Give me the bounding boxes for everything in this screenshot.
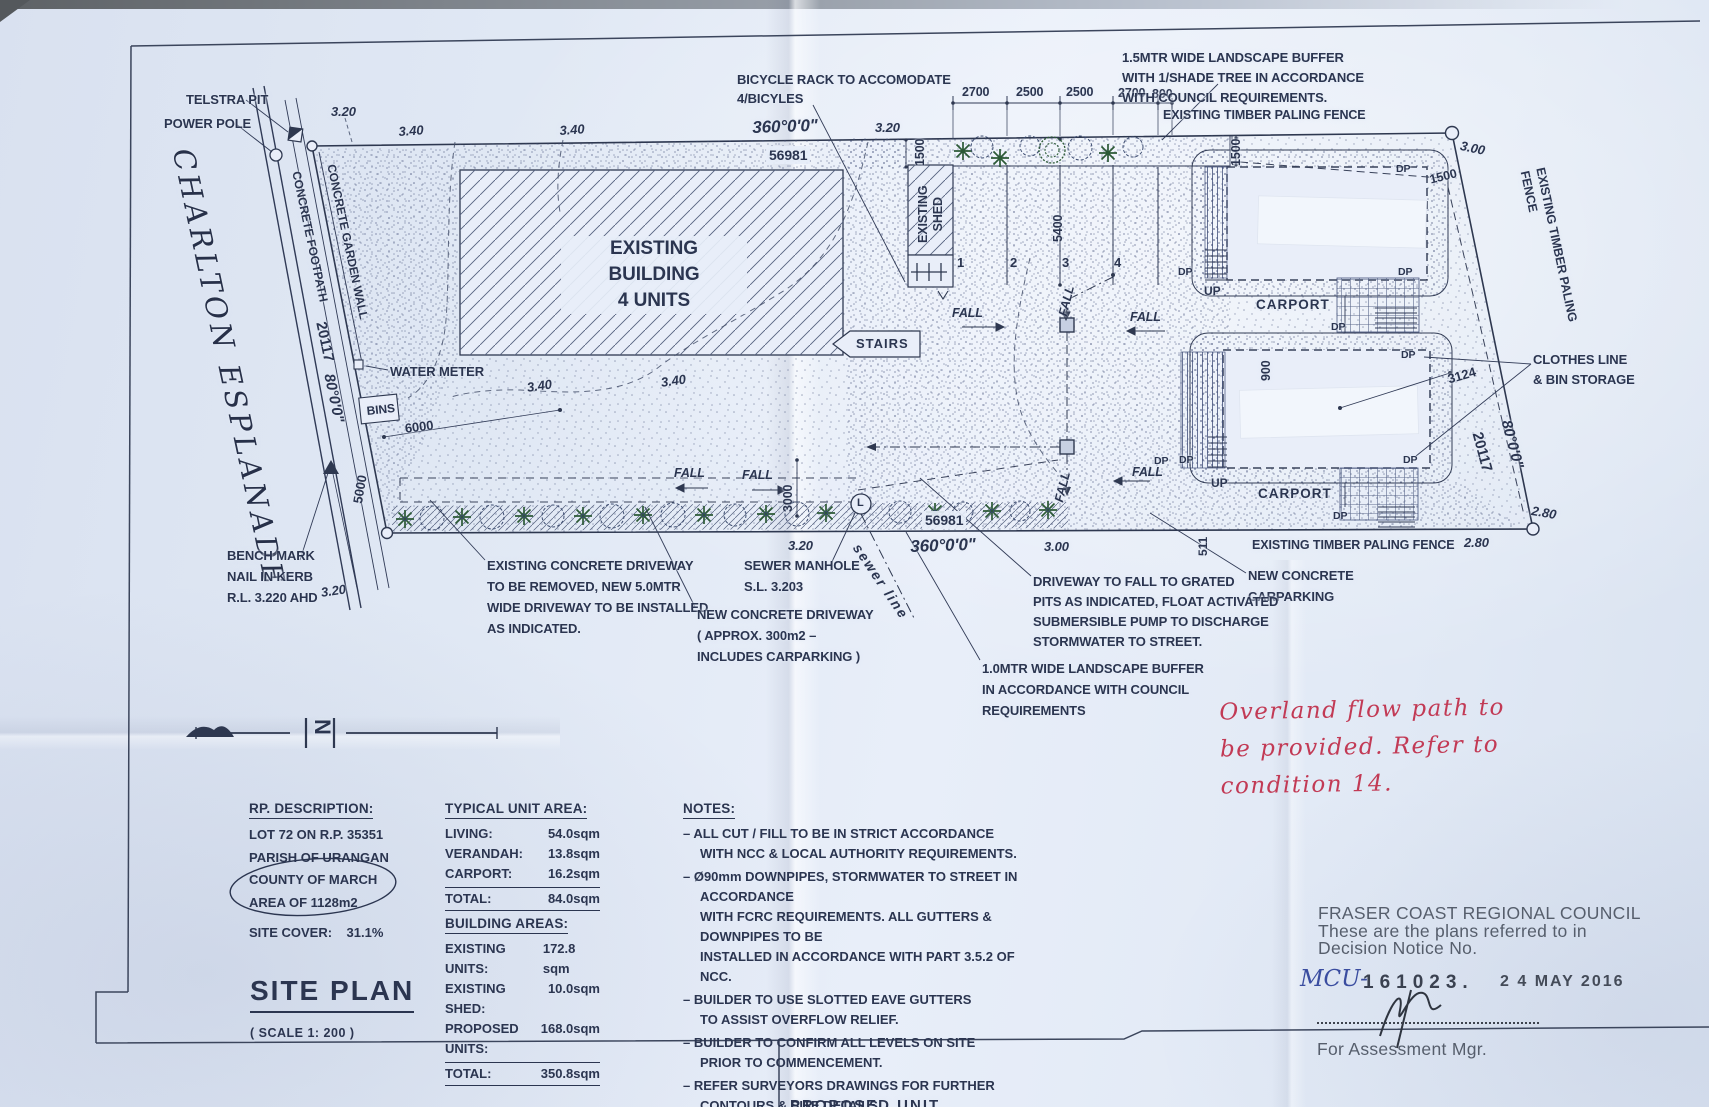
rp-heading: RP. DESCRIPTION:	[249, 801, 373, 819]
fall-label: FALL	[674, 465, 705, 481]
stairs-label: STAIRS	[856, 336, 909, 353]
siteplan-title-block: SITE PLAN ( SCALE 1: 200 )	[250, 975, 414, 1040]
north-letter: N	[307, 719, 336, 735]
notes-items: – ALL CUT / FILL TO BE IN STRICT ACCORDA…	[683, 824, 1028, 1107]
level-320: 3.20	[788, 538, 813, 555]
council-stamp-block: FRASER COAST REGIONAL COUNCIL These are …	[1318, 905, 1641, 958]
downpipe-label: DP	[1333, 510, 1347, 524]
table-row: EXISTING SHED:10.0sqm	[445, 979, 600, 1019]
row-value: 16.2sqm	[548, 864, 600, 884]
page-title: SITE PLAN	[250, 975, 414, 1013]
building-areas-rows: EXISTING UNITS:172.8 sqmEXISTING SHED:10…	[445, 939, 600, 1059]
unit-area-rows: LIVING:54.0sqmVERANDAH:13.8sqmCARPORT:16…	[445, 824, 600, 884]
carpark-bay-number: 1	[957, 255, 964, 272]
bins-label: BINS	[366, 401, 396, 419]
dim-1500: 1500	[912, 139, 928, 166]
rp-description-block: RP. DESCRIPTION: LOT 72 ON R.P. 35351 PA…	[249, 800, 389, 945]
dim-20117: 20117	[311, 320, 338, 364]
level-340: 3.40	[398, 122, 424, 141]
row-label: EXISTING SHED:	[445, 979, 548, 1019]
row-value: 13.8sqm	[548, 844, 600, 864]
building-areas-total: TOTAL: 350.8sqm	[445, 1062, 600, 1086]
fall-label: FALL	[742, 467, 773, 483]
dim-spacing: 2500	[1016, 84, 1043, 100]
row-value: 54.0sqm	[548, 824, 600, 844]
red-handwritten-note: Overland flow path to be provided. Refer…	[1219, 690, 1506, 806]
up-label: UP	[1204, 284, 1220, 300]
carpark-bay-number: 2	[1010, 255, 1017, 272]
note-item: – Ø90mm DOWNPIPES, STORMWATER TO STREET …	[683, 867, 1028, 987]
note-item: – ALL CUT / FILL TO BE IN STRICT ACCORDA…	[683, 824, 1028, 864]
date-stamp: 2 4 MAY 2016	[1500, 973, 1625, 991]
table-row: LIVING:54.0sqm	[445, 824, 600, 844]
unit-area-total: TOTAL: 84.0sqm	[445, 887, 600, 911]
fall-label: FALL	[1051, 470, 1074, 504]
fall-label: FALL	[1132, 464, 1163, 480]
fence-label-top: EXISTING TIMBER PALING FENCE	[1163, 107, 1366, 123]
note-landscape-buffer-1500: 1.5MTR WIDE LANDSCAPE BUFFER WITH 1/SHAD…	[1122, 48, 1364, 108]
bearing-east: 80°0'0"	[1496, 418, 1528, 471]
bearing-south: 360°0'0"	[910, 534, 976, 558]
downpipe-label: DP	[1398, 266, 1412, 280]
carport-label: CARPORT	[1258, 485, 1332, 503]
fence-label-right: EXISTING TIMBER PALING FENCE	[1516, 166, 1581, 330]
council-line3: Decision Notice No.	[1318, 940, 1641, 958]
red-note-line: condition 14.	[1220, 764, 1506, 806]
downpipe-label: DP	[1396, 163, 1410, 177]
table-row: CARPORT:16.2sqm	[445, 864, 600, 884]
rp-site-cover: SITE COVER: 31.1%	[249, 922, 389, 945]
fall-label: FALL	[952, 305, 983, 321]
carpark-bay-number: 4	[1114, 255, 1121, 272]
note-new-driveway: NEW CONCRETE DRIVEWAY ( APPROX. 300m2 – …	[697, 604, 874, 667]
level-280: 2.80	[1530, 503, 1557, 524]
telstra-pit-label: TELSTRA PIT	[186, 92, 268, 109]
row-value: 172.8 sqm	[543, 939, 600, 979]
signature-line	[1317, 1022, 1539, 1024]
rp-county: COUNTY OF MARCH	[249, 869, 389, 892]
power-pole-label: POWER POLE	[164, 116, 251, 133]
level-340: 3.40	[559, 121, 585, 140]
distance-south: 56981	[922, 511, 966, 529]
row-label: VERANDAH:	[445, 844, 523, 864]
table-row: EXISTING UNITS:172.8 sqm	[445, 939, 600, 979]
table-row: PROPOSED UNITS:168.0sqm	[445, 1019, 600, 1059]
up-label: UP	[1211, 476, 1227, 492]
benchmark-note: BENCH MARK NAIL IN KERB R.L. 3.220 AHD	[227, 545, 318, 608]
note-item: – REFER SURVEYORS DRAWINGS FOR FURTHER C…	[683, 1076, 1028, 1107]
decision-number-stamp: 161023.	[1363, 972, 1474, 994]
bearing-north: 360°0'0"	[752, 115, 818, 139]
dim-5000: 5000	[350, 474, 372, 505]
scanned-site-plan-page: TELSTRA PITPOWER POLECHARLTON ESPLANADE3…	[0, 0, 1709, 1107]
downpipe-label: DP	[1401, 349, 1415, 363]
row-value: 168.0sqm	[541, 1019, 600, 1059]
row-label: CARPORT:	[445, 864, 512, 884]
row-label: LIVING:	[445, 824, 493, 844]
note-driveway-fall: DRIVEWAY TO FALL TO GRATED PITS AS INDIC…	[1033, 572, 1278, 652]
notes-block: NOTES: – ALL CUT / FILL TO BE IN STRICT …	[683, 800, 1028, 1107]
dim-spacing: 2500	[1066, 84, 1093, 100]
row-label: EXISTING UNITS:	[445, 939, 543, 979]
fall-label: FALL	[1130, 309, 1161, 325]
note-sewer-manhole: SEWER MANHOLE S.L. 3.203	[744, 555, 860, 597]
downpipe-label: DP	[1331, 321, 1345, 335]
dim-3000: 3000	[780, 485, 796, 512]
rp-parish: PARISH OF URANGAN	[249, 847, 389, 870]
note-existing-driveway: EXISTING CONCRETE DRIVEWAY TO BE REMOVED…	[487, 555, 708, 639]
street-name: CHARLTON ESPLANADE	[163, 145, 293, 591]
dim-511: 511	[1196, 537, 1212, 556]
distance-north: 56981	[766, 146, 810, 164]
level-300: 3.00	[1044, 539, 1069, 556]
red-note-line: Overland flow path to	[1219, 690, 1505, 732]
for-assessment-mgr: For Assessment Mgr.	[1317, 1041, 1487, 1059]
note-item: – BUILDER TO CONFIRM ALL LEVELS ON SITE …	[683, 1033, 1028, 1073]
row-value: 10.0sqm	[548, 979, 600, 1019]
level-340: 3.40	[526, 377, 553, 397]
rp-lot: LOT 72 ON R.P. 35351	[249, 824, 389, 847]
table-row: VERANDAH:13.8sqm	[445, 844, 600, 864]
dim-1500: 1500	[1428, 165, 1459, 187]
building-areas-table: BUILDING AREAS: EXISTING UNITS:172.8 sqm…	[445, 915, 600, 1086]
level-320: 3.20	[320, 582, 347, 602]
downpipe-label: DP	[1403, 454, 1417, 468]
level-320: 3.20	[331, 104, 356, 121]
scale-note: ( SCALE 1: 200 )	[250, 1026, 414, 1040]
bearing-west: 80°0'0"	[319, 372, 348, 424]
note-item: – BUILDER TO USE SLOTTED EAVE GUTTERS TO…	[683, 990, 1028, 1030]
note-bicycle-rack: BICYCLE RACK TO ACCOMODATE 4/BICYLES	[737, 70, 951, 108]
building-label: EXISTING BUILDING 4 UNITS	[561, 236, 747, 314]
red-note-line: be provided. Refer to	[1220, 727, 1506, 769]
dim-3124: 3124	[1446, 364, 1478, 388]
dim-900: 900	[1258, 360, 1274, 381]
notes-heading: NOTES:	[683, 801, 735, 819]
dim-spacing: 2700	[962, 84, 989, 100]
footpath-label: CONCRETE FOOTPATH	[288, 170, 331, 304]
building-areas-heading: BUILDING AREAS:	[445, 916, 568, 934]
water-meter-label: WATER METER	[390, 364, 484, 381]
dim-5400: 5400	[1050, 215, 1066, 242]
note-clothes-line: CLOTHES LINE & BIN STORAGE	[1533, 350, 1635, 390]
carpark-bay-number: 3	[1062, 255, 1069, 272]
rp-area: AREA OF 1128m2	[249, 892, 389, 915]
level-340: 3.40	[660, 372, 687, 392]
carport-label: CARPORT	[1256, 296, 1330, 314]
level-280: 2.80	[1464, 535, 1489, 552]
dim-6000: 6000	[404, 418, 434, 438]
downpipe-label: DP	[1179, 454, 1193, 468]
unit-area-table: TYPICAL UNIT AREA: LIVING:54.0sqmVERANDA…	[445, 800, 600, 911]
fence-label-bottom: EXISTING TIMBER PALING FENCE	[1252, 537, 1455, 553]
existing-shed-label: EXISTING SHED	[916, 185, 946, 243]
manhole-letter: L	[857, 496, 864, 510]
fall-label: FALL	[1055, 284, 1078, 318]
downpipe-label: DP	[1178, 266, 1192, 280]
note-landscape-buffer-1000: 1.0MTR WIDE LANDSCAPE BUFFER IN ACCORDAN…	[982, 658, 1204, 721]
level-300: 3.00	[1458, 138, 1486, 160]
dim-20117: 20117	[1467, 430, 1496, 474]
mcu-handwritten: MCU-	[1300, 966, 1368, 992]
council-line1: FRASER COAST REGIONAL COUNCIL	[1318, 905, 1641, 923]
dim-1500: 1500	[1228, 139, 1244, 166]
row-label: PROPOSED UNITS:	[445, 1019, 541, 1059]
unit-area-heading: TYPICAL UNIT AREA:	[445, 801, 587, 819]
level-320: 3.20	[875, 120, 900, 137]
